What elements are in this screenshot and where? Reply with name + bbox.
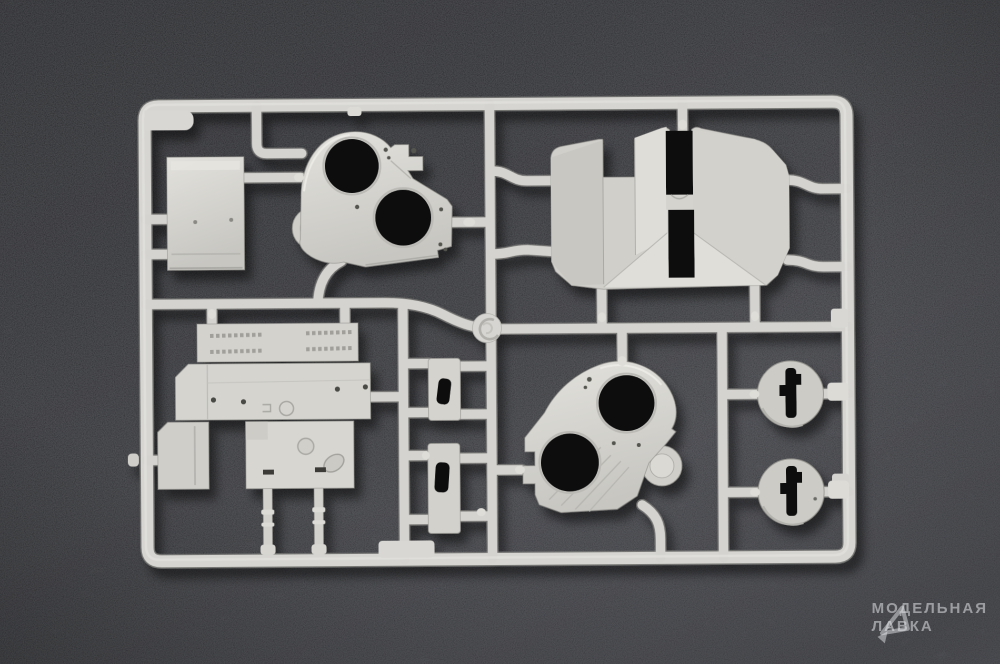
cursor-triangle-logo-icon [872,602,916,648]
frame-outer-nub [128,454,139,467]
photo-of-model-kit-sprue: МОДЕЛЬНАЯ ЛАВКА [0,0,1000,664]
injection-node [472,313,501,342]
frame-nub [347,107,361,116]
box-part [167,157,245,271]
disc-gate-block [828,481,849,499]
bracket-large [428,443,461,533]
sprue-photo-canvas [0,0,1000,664]
disc-upper [757,361,823,427]
bracket-small [428,358,460,420]
watermark: МОДЕЛЬНАЯ ЛАВКА [872,600,988,636]
hull-roof-part [551,126,790,290]
bottom-gate-tab [378,540,434,557]
frame-step-tab [831,309,848,328]
disc-gate-block [827,383,848,401]
corner-gate-tab [144,110,193,130]
disc-lower [758,459,824,525]
